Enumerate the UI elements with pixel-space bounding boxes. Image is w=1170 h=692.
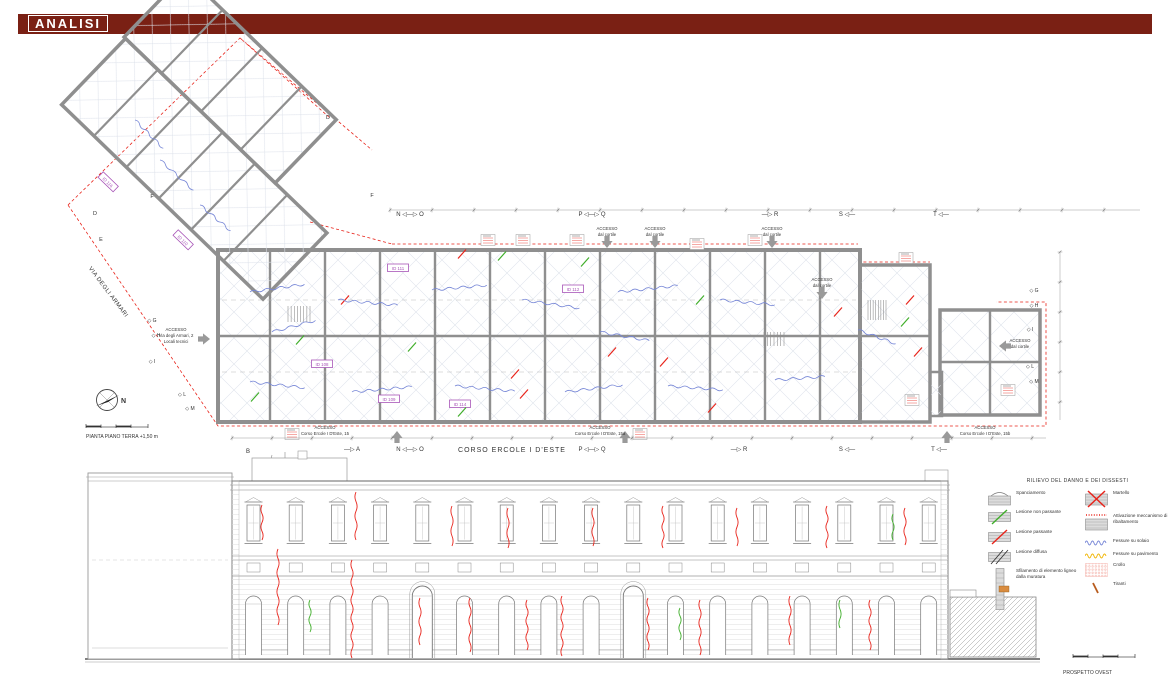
legend-item: Crollo	[1085, 562, 1125, 578]
mezzanine-window	[542, 563, 555, 572]
facade-opening	[879, 596, 895, 655]
section-marker: P ◁—▷ Q	[578, 447, 605, 453]
access-label: ACCESSO	[589, 425, 611, 430]
legend-item: Lesione non passante	[988, 509, 1061, 525]
access-label: Via degli Armari, 2	[159, 333, 194, 338]
room-id-label: ID 111	[388, 264, 409, 272]
mezzanine-window	[500, 563, 513, 572]
legend-label: Spanciamento	[1016, 490, 1045, 496]
fessure-pavimento-icon	[1085, 551, 1109, 559]
access-label: dal cortile	[1011, 344, 1030, 349]
access-label: dal cortile	[646, 232, 665, 237]
facade-opening	[412, 586, 432, 658]
legend-label: Lesione non passante	[1016, 509, 1061, 515]
chimney	[298, 451, 307, 459]
room-id-text: ID 114	[454, 402, 467, 407]
access-label: Corso Ercole I D'Este, 15	[301, 431, 350, 436]
legend-item: Fessure su solaio	[1085, 538, 1149, 546]
legend-item: Lesione passante	[988, 529, 1052, 545]
mezzanine-window	[922, 563, 935, 572]
legend-item: Attivazione meccanismo di ribaltamento	[1085, 513, 1170, 531]
legend-label: Fessure su solaio	[1113, 538, 1149, 544]
room-id-label: ID 109	[379, 395, 400, 403]
left-wing	[86, 473, 234, 659]
street-label-via: VIA DEGLI ARMARI	[87, 266, 129, 319]
section-marker: —▷ R	[731, 447, 748, 453]
mezzanine-window	[247, 563, 260, 572]
legend-label: Sfilamento di elemento ligneo dalla mura…	[1016, 568, 1078, 579]
note-box	[690, 239, 704, 250]
access-label: dal cortile	[763, 232, 782, 237]
lesione-passante-icon	[988, 529, 1012, 545]
facade-opening	[794, 596, 810, 655]
section-marker: T ◁—	[933, 212, 949, 218]
room-id-text: ID 109	[383, 397, 396, 402]
room-id-label: ID 108	[312, 360, 333, 368]
lesione-non-passante-icon	[988, 509, 1012, 525]
section-letter: D	[93, 211, 97, 217]
facade-opening	[541, 596, 557, 655]
note-box	[905, 395, 919, 406]
room-id-text: ID 111	[392, 266, 405, 271]
section-marker: S ◁—	[839, 447, 855, 453]
mezzanine-window	[796, 563, 809, 572]
elevation-scale-bar	[1073, 654, 1135, 658]
section-letter: ◇ G	[147, 318, 156, 324]
access-label: ACCESSO	[644, 226, 666, 231]
mezzanine-window	[585, 563, 598, 572]
mezzanine-window	[458, 563, 471, 572]
room-id-text: ID 112	[567, 287, 580, 292]
legend-label: Attivazione meccanismo di ribaltamento	[1113, 513, 1170, 524]
mezzanine-window	[416, 563, 429, 572]
legend-item: Spanciamento	[988, 490, 1045, 506]
attic-block-right	[925, 470, 948, 481]
dimension-line	[1058, 251, 1063, 420]
mezzanine-window	[880, 563, 893, 572]
facade-opening	[372, 596, 388, 655]
section-letter: ◇ L	[178, 392, 186, 398]
section-marker: —▷ A	[344, 447, 360, 453]
section-letter: ◇ M	[185, 406, 194, 412]
legend-label: Tiranti	[1113, 581, 1126, 587]
room-id-text: ID 108	[316, 362, 329, 367]
north-label: N	[121, 398, 126, 405]
mezzanine-window	[838, 563, 851, 572]
room-id-label: ID 110	[173, 230, 193, 250]
note-box	[748, 235, 762, 246]
access-label: Locali tecnici	[164, 339, 189, 344]
drawing-sheet: ANALISI	[0, 0, 1170, 692]
section-letter: E	[99, 237, 103, 243]
access-arrow-icon	[601, 236, 612, 248]
section-marker: B	[246, 449, 250, 455]
north-arrow-icon	[96, 390, 119, 411]
section-marker: P ◁—▷ Q	[578, 212, 605, 218]
facade-opening	[330, 596, 346, 655]
access-label: ACCESSO	[761, 226, 783, 231]
facade-opening	[752, 596, 768, 655]
sfilamento-icon	[988, 568, 1012, 610]
access-arrow-icon	[198, 333, 210, 344]
note-box	[899, 253, 913, 264]
facade-opening	[288, 596, 304, 655]
legend-item: Lesione diffusa	[988, 549, 1047, 565]
mezzanine-window	[627, 563, 640, 572]
crollo-icon	[1085, 562, 1109, 578]
room-id-label: ID 112	[563, 285, 584, 293]
mezzanine-window	[289, 563, 302, 572]
facade-opening	[499, 596, 515, 655]
access-label: ACCESSO	[314, 425, 336, 430]
section-letter: ◇ M	[1029, 379, 1038, 385]
section-letter: F	[370, 193, 374, 199]
plan-scale-bar	[86, 424, 148, 428]
facade-opening	[668, 596, 684, 655]
room-id-label: ID 114	[450, 400, 471, 408]
access-label: ACCESSO	[596, 226, 618, 231]
access-label: ACCESSO	[1009, 338, 1031, 343]
access-label: ACCESSO	[811, 277, 833, 282]
spanciamento-icon	[988, 490, 1012, 506]
access-label: Corso Ercole I D'Este, 15a	[575, 431, 626, 436]
section-marker: T ◁—	[931, 447, 947, 453]
section-marker: —▷ R	[762, 212, 779, 218]
facade-opening	[710, 596, 726, 655]
facade-opening	[623, 586, 643, 658]
mezzanine-window	[753, 563, 766, 572]
access-arrow-icon	[766, 236, 777, 248]
tiranti-icon	[1085, 581, 1109, 595]
lesione-diffusa-icon	[988, 549, 1012, 565]
facade-opening	[583, 596, 599, 655]
mezzanine-window	[711, 563, 724, 572]
section-letter: ◇ H	[1030, 303, 1039, 309]
legend-label: Martello	[1113, 490, 1129, 496]
mezzanine-window	[374, 563, 387, 572]
plan-caption: PIANTA PIANO TERRA +1,50 m	[86, 434, 158, 440]
note-box	[1001, 385, 1015, 396]
martello-icon	[1085, 490, 1109, 508]
access-arrow-icon	[941, 431, 952, 443]
floor-plan	[60, 0, 1046, 471]
access-label: ACCESSO	[165, 327, 187, 332]
section-letter: ◇ G	[1029, 288, 1038, 294]
street-label-corso: CORSO ERCOLE I D'ESTE	[458, 447, 566, 454]
note-box	[570, 235, 584, 246]
access-arrow-icon	[649, 236, 660, 248]
facade-opening	[921, 596, 937, 655]
section-letter: ◇ I	[1027, 327, 1034, 333]
room-id-label: ID 116	[98, 172, 118, 192]
mezzanine-window	[331, 563, 344, 572]
section-letter: ◇ I	[149, 359, 156, 365]
section-marker: N ◁—▷ O	[396, 447, 424, 453]
legend-label: Crollo	[1113, 562, 1125, 568]
elevation-caption: PROSPETTO OVEST	[1063, 670, 1112, 676]
access-label: ACCESSO	[974, 425, 996, 430]
facade-opening	[246, 596, 262, 655]
mezzanine-window	[669, 563, 682, 572]
access-label: Corso Ercole I D'Este, 15b	[960, 431, 1011, 436]
note-box	[481, 235, 495, 246]
note-box	[516, 235, 530, 246]
legend-item: Martello	[1085, 490, 1129, 508]
legend-item: Sfilamento di elemento ligneo dalla mura…	[988, 568, 1078, 610]
legend-item: Tiranti	[1085, 581, 1126, 595]
fessure-solaio-icon	[1085, 538, 1109, 546]
elevation-drawing	[85, 451, 1135, 662]
section-marker: S ◁—	[839, 212, 855, 218]
access-label: dal cortile	[813, 283, 832, 288]
ribaltamento-icon	[1085, 513, 1109, 531]
section-letter: ◇ L	[1026, 364, 1034, 370]
attic-block	[252, 458, 347, 481]
legend-label: Lesione diffusa	[1016, 549, 1047, 555]
access-label: dal cortile	[598, 232, 617, 237]
legend-label: Fessure su pavimento	[1113, 551, 1158, 557]
legend-item: Fessure su pavimento	[1085, 551, 1158, 559]
section-letter: D	[326, 115, 330, 121]
legend-title: RILIEVO DEL DANNO E DEI DISSESTI	[1015, 478, 1140, 484]
legend-label: Lesione passante	[1016, 529, 1052, 535]
section-marker: N ◁—▷ O	[396, 212, 424, 218]
